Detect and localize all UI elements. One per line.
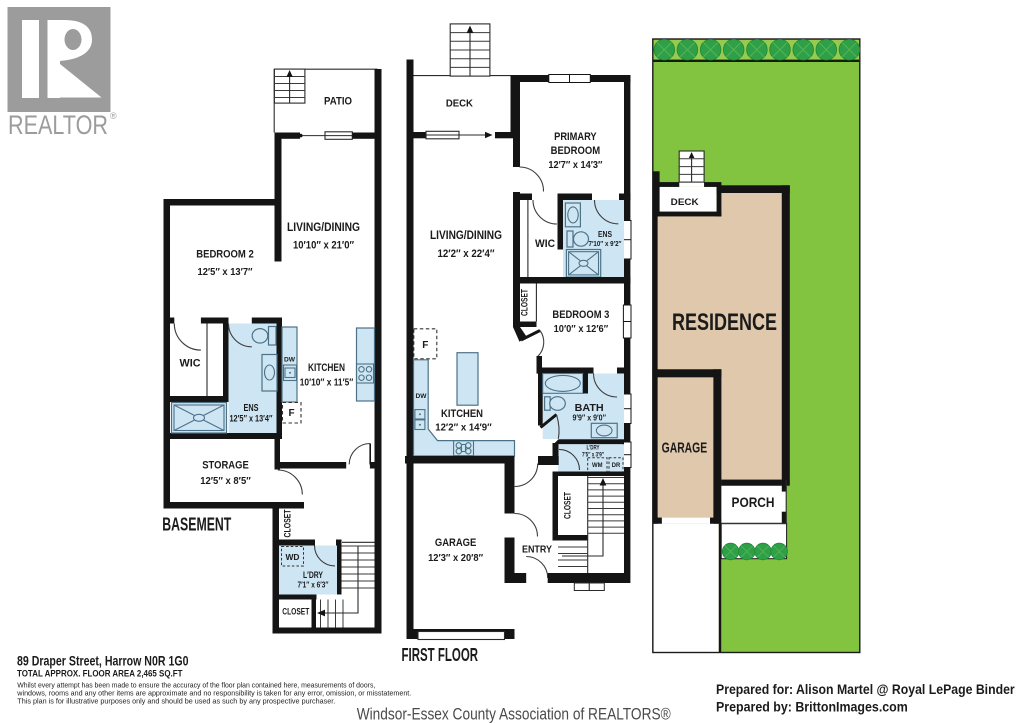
svg-text:DECK: DECK bbox=[671, 197, 699, 208]
svg-text:GARAGE: GARAGE bbox=[662, 440, 708, 457]
svg-text:STORAGE: STORAGE bbox=[202, 460, 249, 472]
svg-text:ENS: ENS bbox=[598, 229, 612, 239]
svg-text:GARAGE: GARAGE bbox=[435, 537, 477, 549]
svg-text:BEDROOM 2: BEDROOM 2 bbox=[196, 249, 254, 261]
svg-text:BATH: BATH bbox=[575, 402, 604, 414]
svg-text:WIC: WIC bbox=[535, 238, 555, 250]
svg-text:7′10″ x 9′2″: 7′10″ x 9′2″ bbox=[589, 239, 622, 248]
svg-text:10′0″ x 12′6″: 10′0″ x 12′6″ bbox=[554, 323, 609, 335]
svg-text:L′DRY: L′DRY bbox=[303, 570, 323, 580]
svg-text:Prepared by: BrittonImages.com: Prepared by: BrittonImages.com bbox=[716, 700, 908, 715]
svg-text:12′2″ x 22′4″: 12′2″ x 22′4″ bbox=[438, 248, 496, 260]
svg-text:ENTRY: ENTRY bbox=[522, 544, 552, 556]
svg-text:WM: WM bbox=[592, 463, 603, 469]
svg-text:DW: DW bbox=[284, 357, 296, 364]
svg-text:89 Draper Street, Harrow N0R 1: 89 Draper Street, Harrow N0R 1G0 bbox=[17, 653, 189, 669]
svg-text:12′5″ x 13′7″: 12′5″ x 13′7″ bbox=[198, 266, 253, 278]
svg-text:PRIMARY: PRIMARY bbox=[554, 131, 597, 143]
svg-text:FIRST FLOOR: FIRST FLOOR bbox=[402, 644, 479, 665]
svg-text:KITCHEN: KITCHEN bbox=[308, 362, 345, 374]
svg-text:CLOSET: CLOSET bbox=[563, 492, 574, 519]
svg-text:DECK: DECK bbox=[446, 98, 473, 110]
svg-text:REALTOR: REALTOR bbox=[8, 110, 108, 140]
svg-text:ENS: ENS bbox=[244, 403, 259, 414]
svg-text:Windsor-Essex County Associati: Windsor-Essex County Association of REAL… bbox=[357, 705, 671, 723]
svg-text:WIC: WIC bbox=[180, 358, 201, 370]
svg-text:WD: WD bbox=[286, 553, 300, 562]
svg-text:BEDROOM 3: BEDROOM 3 bbox=[552, 309, 609, 321]
svg-text:12′3″ x 20′8″: 12′3″ x 20′8″ bbox=[428, 552, 483, 564]
svg-text:DW: DW bbox=[416, 393, 428, 400]
svg-text:BASEMENT: BASEMENT bbox=[162, 514, 231, 535]
svg-text:Prepared for: Alison Martel @: Prepared for: Alison Martel @ Royal LePa… bbox=[716, 682, 1015, 697]
svg-text:7′5″ x 3′9″: 7′5″ x 3′9″ bbox=[582, 453, 604, 459]
svg-text:KITCHEN: KITCHEN bbox=[441, 408, 483, 420]
svg-text:12′5″ x 13′4″: 12′5″ x 13′4″ bbox=[230, 414, 274, 424]
svg-text:CLOSET: CLOSET bbox=[520, 289, 531, 316]
svg-text:®: ® bbox=[110, 111, 117, 121]
svg-text:12′2″ x 14′9″: 12′2″ x 14′9″ bbox=[435, 422, 492, 434]
svg-text:F: F bbox=[422, 340, 428, 351]
svg-text:PATIO: PATIO bbox=[324, 96, 352, 108]
svg-text:7′1″ x 6′3″: 7′1″ x 6′3″ bbox=[298, 581, 329, 590]
svg-text:10′10″ x 11′5″: 10′10″ x 11′5″ bbox=[300, 377, 354, 389]
svg-text:DR: DR bbox=[612, 463, 621, 469]
svg-text:10′10″ x 21′0″: 10′10″ x 21′0″ bbox=[293, 240, 355, 252]
svg-text:LIVING/DINING: LIVING/DINING bbox=[287, 222, 360, 234]
svg-text:RESIDENCE: RESIDENCE bbox=[672, 309, 777, 336]
svg-text:F: F bbox=[288, 408, 294, 419]
svg-text:12′7″ x 14′3″: 12′7″ x 14′3″ bbox=[548, 159, 602, 171]
svg-text:PORCH: PORCH bbox=[732, 494, 775, 510]
svg-text:9′9″ x 9′0″: 9′9″ x 9′0″ bbox=[572, 414, 606, 423]
svg-text:TOTAL APPROX. FLOOR AREA 2,465: TOTAL APPROX. FLOOR AREA 2,465 SQ.FT bbox=[17, 669, 183, 680]
svg-text:CLOSET: CLOSET bbox=[282, 607, 309, 618]
svg-text:LIVING/DINING: LIVING/DINING bbox=[430, 230, 502, 242]
svg-text:12′5″ x 8′5″: 12′5″ x 8′5″ bbox=[200, 475, 251, 487]
svg-text:BEDROOM: BEDROOM bbox=[551, 145, 601, 157]
svg-text:CLOSET: CLOSET bbox=[283, 509, 294, 537]
svg-text:This plan is for illustrative: This plan is for illustrative purposes o… bbox=[17, 696, 335, 705]
svg-text:L′DRY: L′DRY bbox=[587, 445, 600, 452]
